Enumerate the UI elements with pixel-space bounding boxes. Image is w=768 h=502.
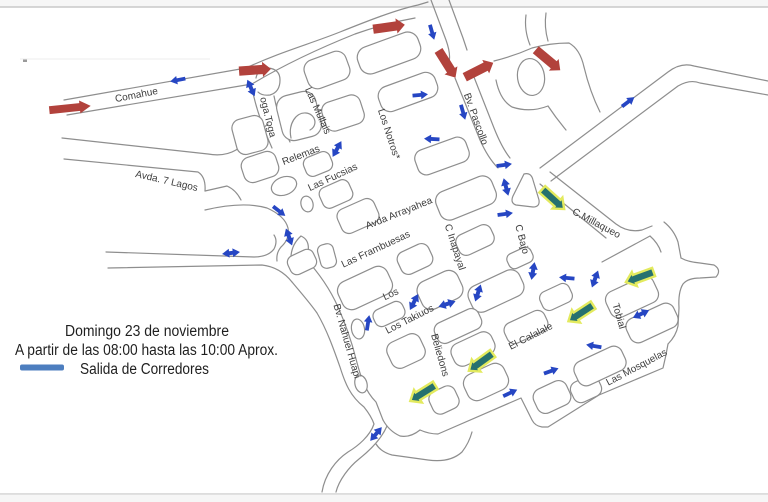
svg-text:A partir de las 08:00 hasta la: A partir de las 08:00 hasta las 10:00 Ap… (15, 342, 278, 359)
svg-text:Domingo 23 de noviembre: Domingo 23 de noviembre (65, 323, 229, 340)
svg-text:Salida de Corredores: Salida de Corredores (80, 361, 209, 378)
